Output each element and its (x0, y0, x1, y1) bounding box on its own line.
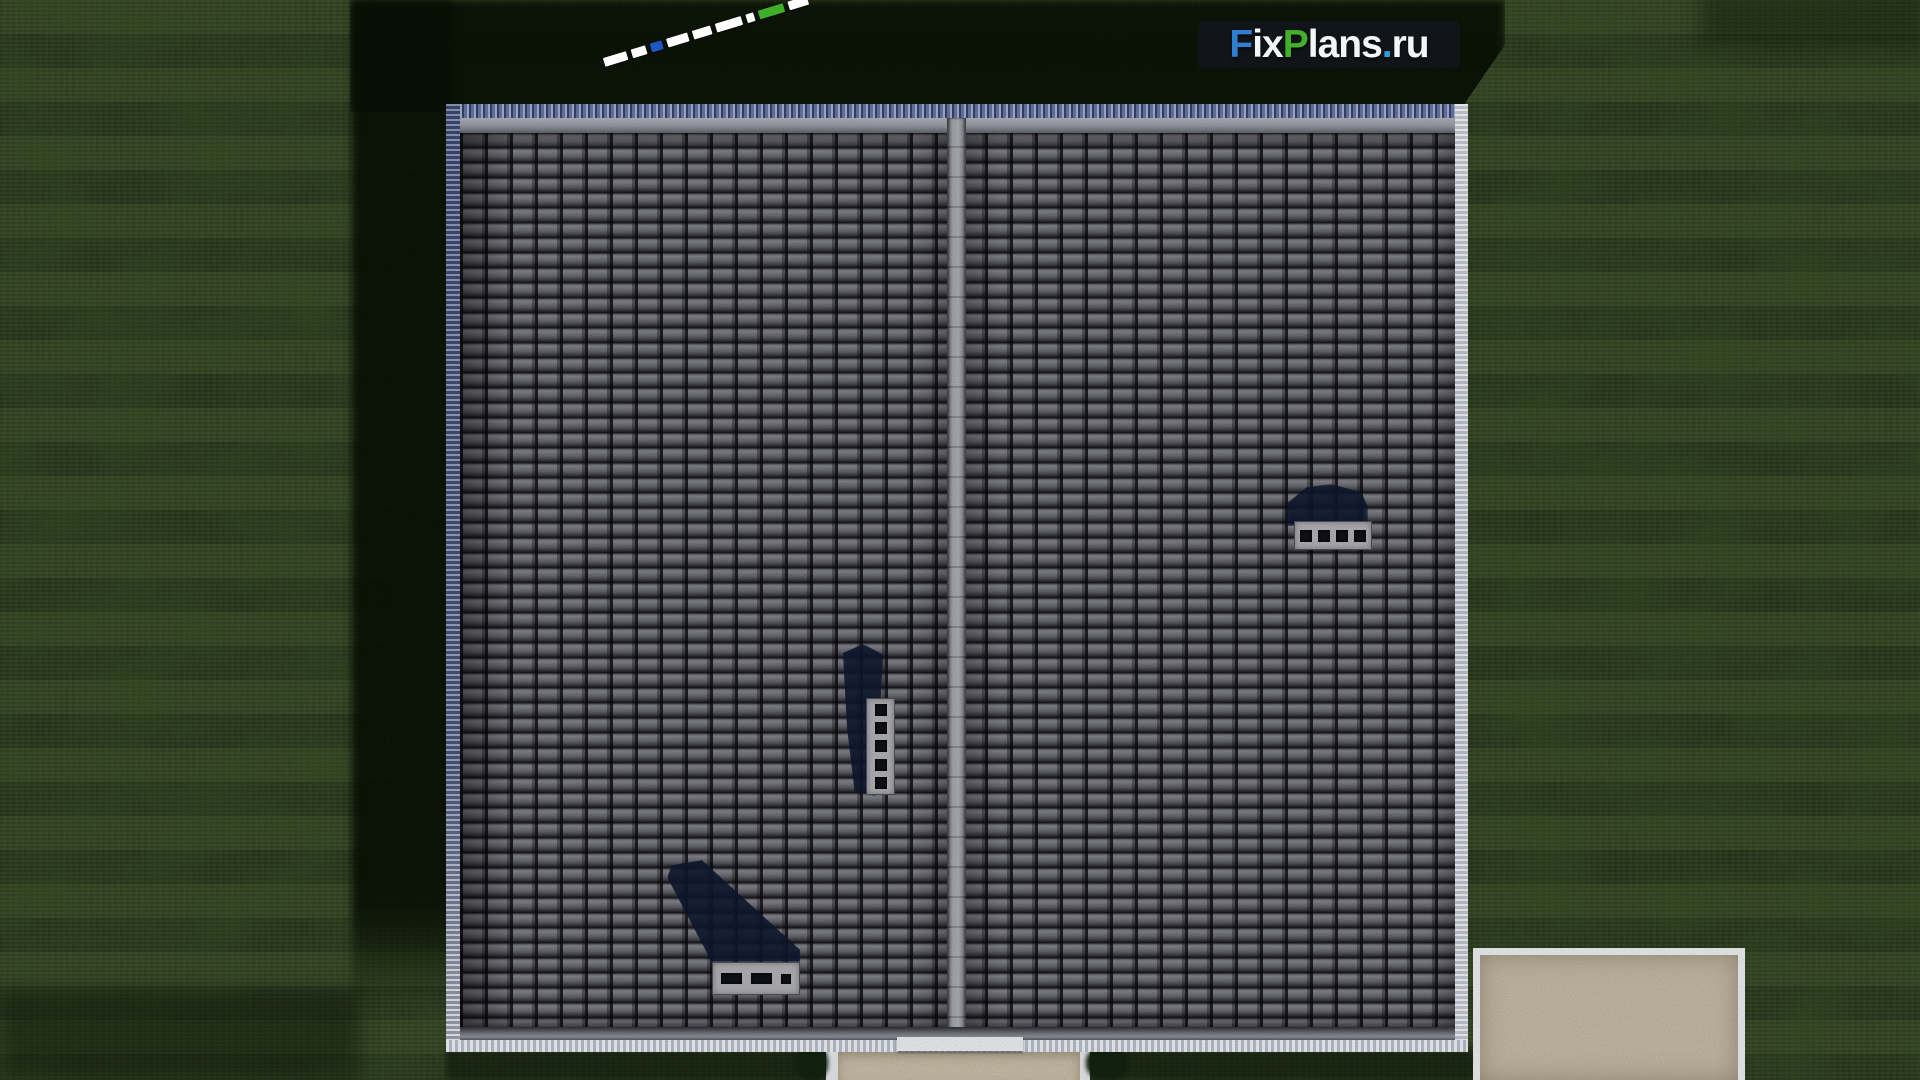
chimney-flue (721, 973, 742, 984)
grass-shadow-corner-bottom-left (0, 990, 360, 1080)
chimney-flue (875, 722, 887, 734)
chimney-horizontal-bottom (712, 962, 800, 995)
roof-border-right (1455, 104, 1468, 1052)
house-shadow-left (352, 0, 452, 1005)
chimney-flue (1300, 530, 1312, 542)
chimney-horizontal-right (1294, 521, 1372, 550)
chimney-flue (1354, 530, 1366, 542)
roof-ridge (947, 118, 966, 1040)
chimney-flue (875, 759, 887, 771)
scale-bar-segment (745, 12, 755, 23)
logo-text-part: lans (1308, 23, 1382, 67)
logo-text-part: P (1283, 23, 1308, 67)
roof-border-top (446, 104, 1468, 118)
roof-plane-right-shading (966, 133, 1455, 1027)
gravel-patio (1473, 948, 1745, 1080)
logo-text-part: ix (1252, 23, 1283, 67)
grass-shadow-corner-top-right (1700, 0, 1920, 45)
chimney-flue (875, 740, 887, 752)
entrance-step (897, 1036, 1023, 1051)
chimney-flue (1318, 530, 1330, 542)
chimney-flue (1336, 530, 1348, 542)
chimney-flue (875, 704, 887, 716)
roof (446, 104, 1468, 1052)
site-logo-watermark: FixPlans.ru (1198, 21, 1460, 68)
logo-text-part: ru (1392, 23, 1429, 67)
logo-text-part: . (1382, 23, 1392, 67)
logo-text-part: F (1229, 23, 1252, 67)
chimney-flue (781, 974, 791, 984)
roof-border-left (446, 104, 460, 1052)
chimney-flue (751, 973, 772, 984)
chimney-vertical-center (866, 698, 895, 795)
chimney-flue (875, 777, 887, 789)
scene: FixPlans.ru (0, 0, 1920, 1080)
gravel-entrance-path (826, 1050, 1090, 1080)
